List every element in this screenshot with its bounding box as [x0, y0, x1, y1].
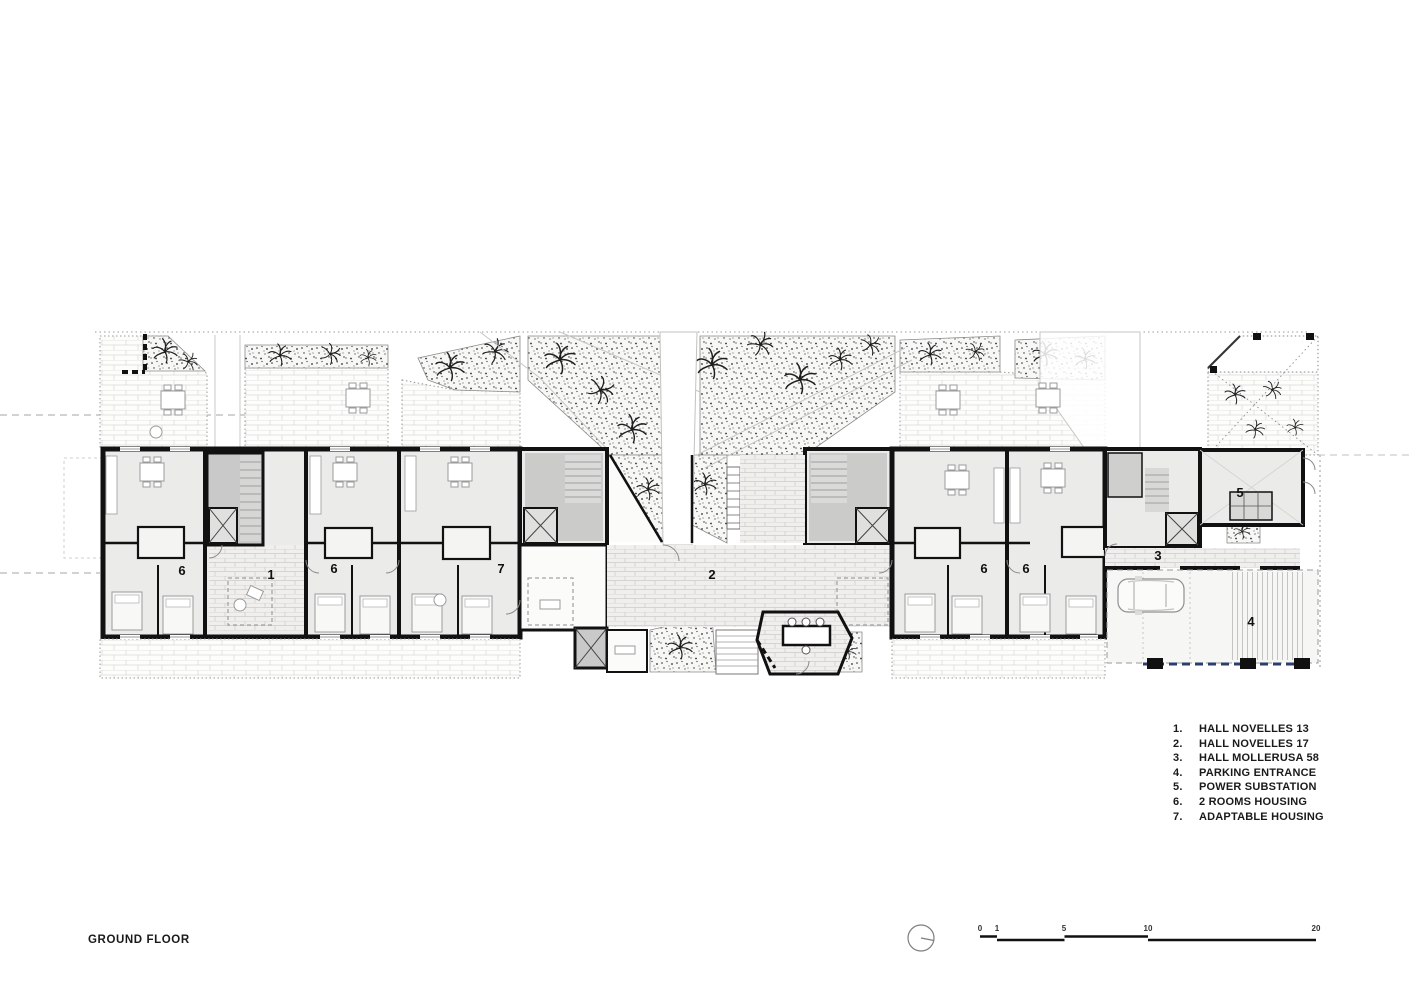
legend-item-number: 7.: [1173, 810, 1199, 825]
legend-item: 7. ADAPTABLE HOUSING: [1173, 810, 1324, 825]
legend-item-label: POWER SUBSTATION: [1199, 780, 1317, 795]
page-title: GROUND FLOOR: [88, 934, 190, 946]
plan-label-unit6-a: 6: [178, 563, 185, 578]
plan-label-substation: 5: [1236, 485, 1243, 500]
scale-tick-5: 5: [1062, 924, 1067, 933]
legend-item-number: 3.: [1173, 751, 1199, 766]
page: 6 1 6 7 2 6 6 3 5 4 1. HALL NOVELLES 13 …: [0, 0, 1414, 1000]
legend-item-label: 2 ROOMS HOUSING: [1199, 795, 1307, 810]
scale-tick-1: 1: [995, 924, 1000, 933]
legend-item: 1. HALL NOVELLES 13: [1173, 722, 1324, 737]
plan-label-hall-3: 3: [1154, 548, 1161, 563]
legend-item-number: 4.: [1173, 766, 1199, 781]
legend-item-number: 1.: [1173, 722, 1199, 737]
legend-item-label: ADAPTABLE HOUSING: [1199, 810, 1324, 825]
legend-item-label: HALL NOVELLES 17: [1199, 737, 1309, 752]
legend-item: 5. POWER SUBSTATION: [1173, 780, 1324, 795]
floor-plan-drawing: 6 1 6 7 2 6 6 3 5 4: [0, 0, 1414, 1000]
legend-item-label: HALL NOVELLES 13: [1199, 722, 1309, 737]
north-arrow-icon: [905, 922, 939, 956]
scale-tick-10: 10: [1144, 924, 1153, 933]
right-end-block: [1105, 449, 1318, 669]
legend-item-label: PARKING ENTRANCE: [1199, 766, 1316, 781]
plan-label-unit6-c: 6: [980, 561, 987, 576]
plan-label-hall-2: 2: [708, 567, 715, 582]
legend-item-number: 6.: [1173, 795, 1199, 810]
legend: 1. HALL NOVELLES 13 2. HALL NOVELLES 17 …: [1173, 722, 1324, 824]
hall-2-plaza: [607, 545, 892, 627]
scale-bar: 0 1 5 10 20: [966, 920, 1336, 950]
plan-label-hall-1: 1: [267, 567, 274, 582]
legend-item-number: 5.: [1173, 780, 1199, 795]
legend-item-label: HALL MOLLERUSA 58: [1199, 751, 1319, 766]
plan-label-parking: 4: [1247, 614, 1255, 629]
legend-item: 4. PARKING ENTRANCE: [1173, 766, 1324, 781]
plan-label-unit7: 7: [497, 561, 504, 576]
plan-label-unit6-b: 6: [330, 561, 337, 576]
legend-item: 6. 2 ROOMS HOUSING: [1173, 795, 1324, 810]
legend-item: 3. HALL MOLLERUSA 58: [1173, 751, 1324, 766]
legend-item: 2. HALL NOVELLES 17: [1173, 737, 1324, 752]
scale-tick-0: 0: [978, 924, 983, 933]
scale-tick-20: 20: [1312, 924, 1321, 933]
plan-label-unit6-d: 6: [1022, 561, 1029, 576]
legend-item-number: 2.: [1173, 737, 1199, 752]
